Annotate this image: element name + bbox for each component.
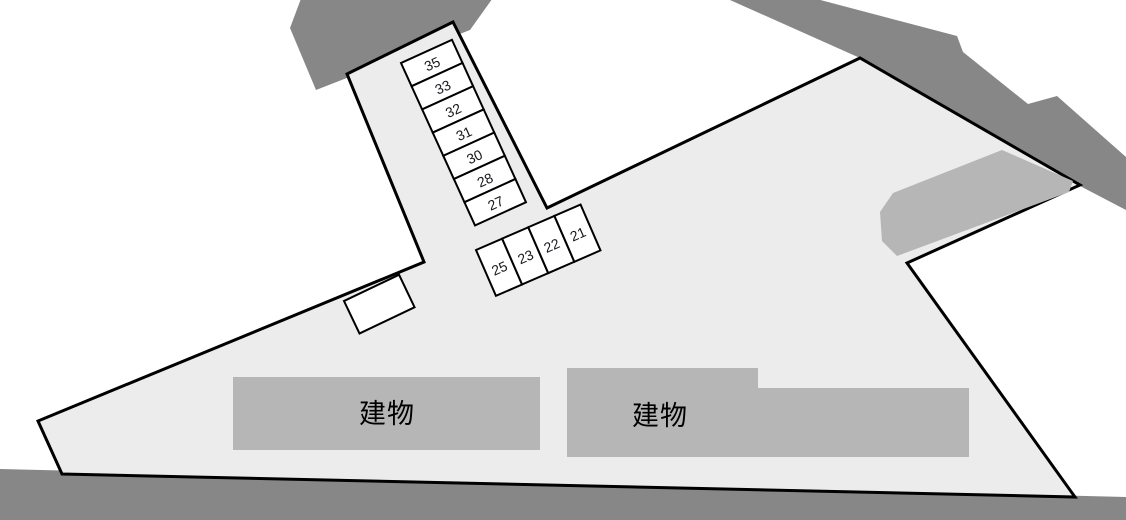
parking-site-map-page: 建物建物3533323130282725232221 bbox=[0, 0, 1126, 520]
building-2-label: 建物 bbox=[632, 401, 688, 431]
building-1-label: 建物 bbox=[359, 399, 415, 429]
site-map: 建物建物3533323130282725232221 bbox=[0, 0, 1126, 520]
